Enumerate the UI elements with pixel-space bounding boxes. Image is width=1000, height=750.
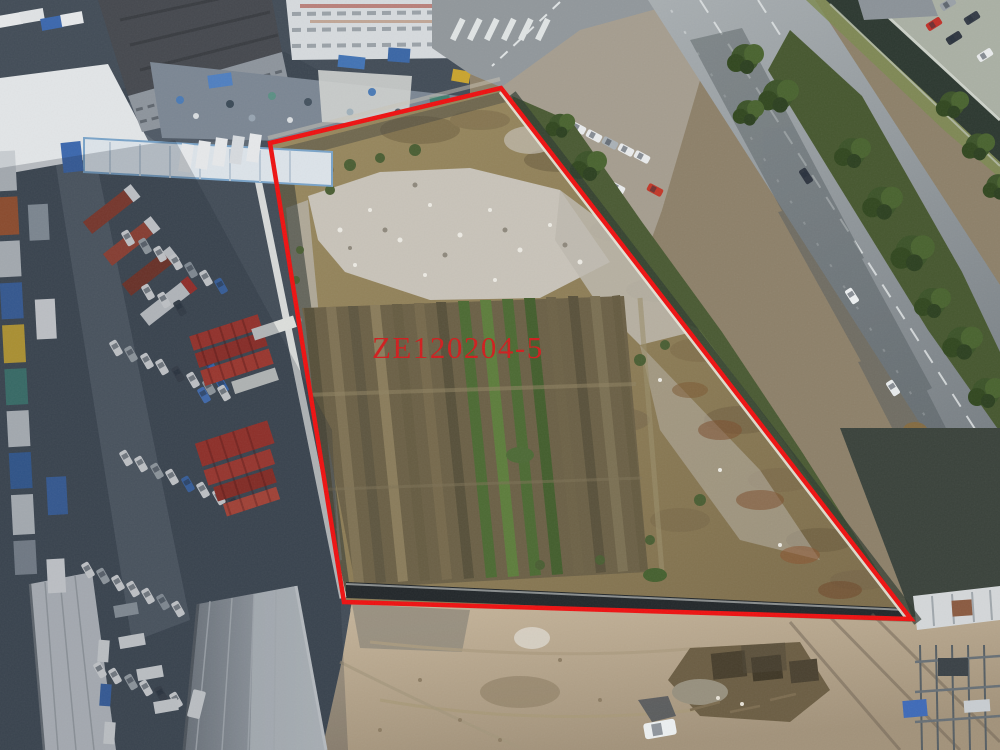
- photo-grain-overlay: [0, 0, 1000, 750]
- aerial-photo-viewport: ZE120204-5: [0, 0, 1000, 750]
- aerial-photo: ZE120204-5: [0, 0, 1000, 750]
